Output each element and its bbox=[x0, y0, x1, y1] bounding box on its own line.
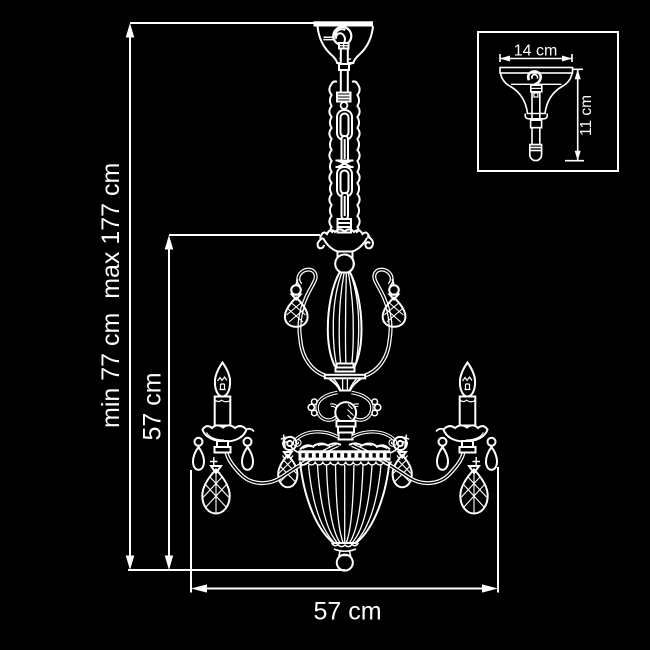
svg-text:14 cm: 14 cm bbox=[514, 43, 558, 60]
svg-text:57 cm: 57 cm bbox=[139, 372, 167, 440]
svg-text:min 77 cm max 177 cm: min 77 cm max 177 cm bbox=[97, 163, 125, 428]
svg-text:57 cm: 57 cm bbox=[313, 598, 381, 626]
svg-text:11 cm: 11 cm bbox=[578, 95, 595, 136]
